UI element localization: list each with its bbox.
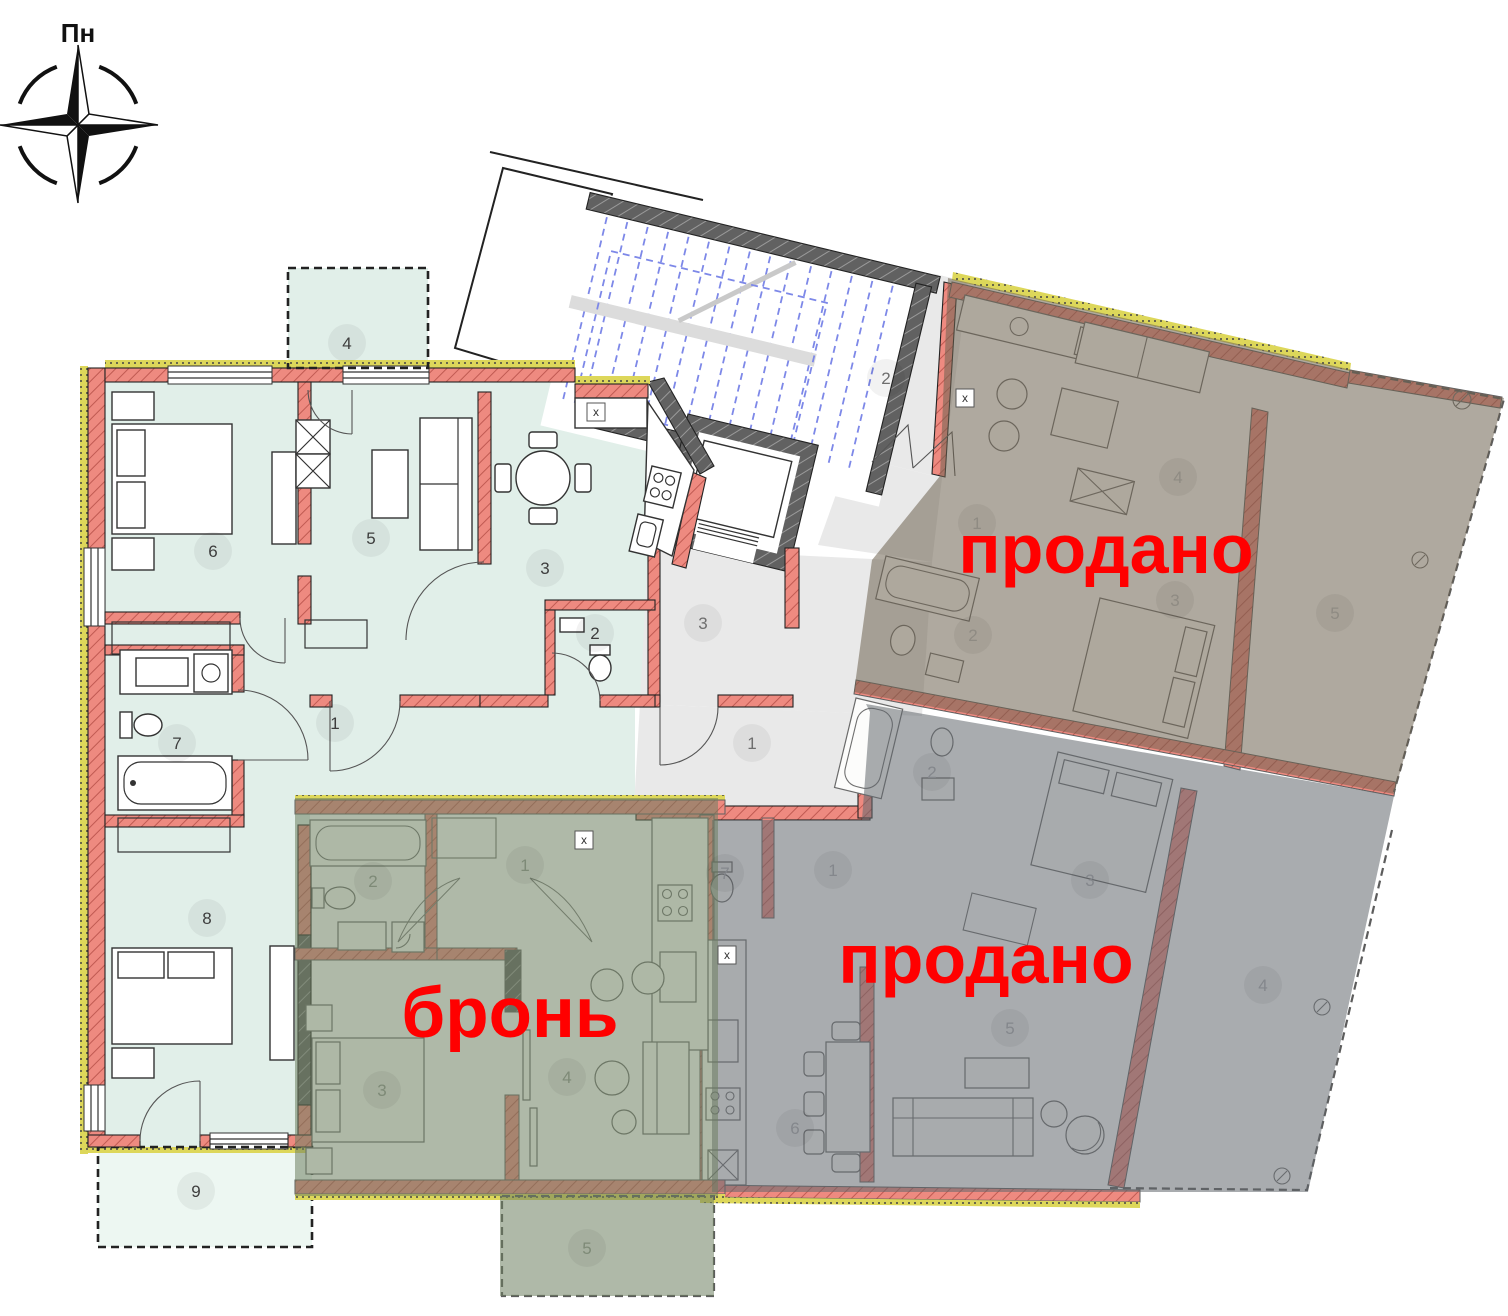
room-label-available-6: 6 [194, 532, 232, 570]
svg-text:1: 1 [520, 856, 529, 875]
svg-text:x: x [724, 948, 730, 962]
sink-marker-icon-3: x [956, 389, 974, 407]
svg-text:7: 7 [720, 864, 729, 883]
svg-text:1: 1 [330, 714, 339, 733]
room-label-sold_bottom-2: 2 [913, 753, 951, 791]
svg-text:3: 3 [1170, 591, 1179, 610]
room-label-available-5: 5 [352, 519, 390, 557]
svg-text:3: 3 [1085, 871, 1094, 890]
svg-text:5: 5 [1005, 1019, 1014, 1038]
svg-text:4: 4 [1173, 468, 1182, 487]
room-label-available-9: 9 [177, 1172, 215, 1210]
svg-text:1: 1 [747, 734, 756, 753]
svg-text:x: x [593, 405, 599, 419]
room-label-sold_top-5: 5 [1316, 594, 1354, 632]
svg-text:4: 4 [562, 1068, 571, 1087]
floor-plan-svg: Пн [0, 0, 1508, 1316]
status-label-sold-bottom: продано [838, 920, 1133, 998]
room-label-available-8: 8 [188, 899, 226, 937]
room-label-common-1: 1 [733, 724, 771, 762]
room-label-available-1: 1 [316, 704, 354, 742]
svg-text:9: 9 [191, 1182, 200, 1201]
svg-text:6: 6 [208, 542, 217, 561]
room-label-common-3: 3 [684, 604, 722, 642]
svg-text:6: 6 [790, 1119, 799, 1138]
svg-text:3: 3 [377, 1081, 386, 1100]
room-label-available-4: 4 [328, 324, 366, 362]
svg-text:7: 7 [172, 734, 181, 753]
svg-text:1: 1 [828, 861, 837, 880]
svg-text:4: 4 [342, 334, 351, 353]
svg-text:2: 2 [368, 872, 377, 891]
room-label-reserved-3: 3 [363, 1071, 401, 1109]
room-label-sold_bottom-5: 5 [991, 1009, 1029, 1047]
room-label-reserved-5: 5 [568, 1229, 606, 1267]
svg-text:2: 2 [590, 624, 599, 643]
sink-marker-icon-2: x [718, 946, 736, 964]
svg-text:2: 2 [968, 626, 977, 645]
room-label-sold_top-2: 2 [954, 616, 992, 654]
wardrobe-icon [296, 420, 330, 488]
svg-text:2: 2 [881, 369, 890, 388]
svg-text:2: 2 [927, 763, 936, 782]
status-label-reserved: бронь [401, 974, 618, 1053]
svg-text:8: 8 [202, 909, 211, 928]
svg-text:x: x [962, 391, 968, 405]
svg-text:5: 5 [1330, 604, 1339, 623]
room-label-sold_bottom-3: 3 [1071, 861, 1109, 899]
coffee-table [372, 450, 408, 518]
status-label-sold-top: продано [958, 510, 1253, 588]
svg-text:5: 5 [582, 1239, 591, 1258]
svg-text:4: 4 [1258, 976, 1267, 995]
svg-text:3: 3 [540, 559, 549, 578]
room-label-reserved-4: 4 [548, 1058, 586, 1096]
room-label-sold_bottom-6: 6 [776, 1109, 814, 1147]
room-label-common-2: 2 [867, 359, 905, 397]
floor-plan: Пн [0, 0, 1508, 1316]
compass-rose-icon: Пн [0, 18, 158, 203]
sink-marker-icon-0: x [587, 403, 605, 421]
sink-marker-icon-1: x [575, 831, 593, 849]
room-label-available-3: 3 [526, 549, 564, 587]
room-label-sold_bottom-7: 7 [706, 854, 744, 892]
svg-text:5: 5 [366, 529, 375, 548]
compass-north-label: Пн [61, 18, 95, 48]
room-label-available-7: 7 [158, 724, 196, 762]
room-label-sold_bottom-4: 4 [1244, 966, 1282, 1004]
svg-text:x: x [581, 833, 587, 847]
room-label-reserved-2: 2 [354, 862, 392, 900]
room-label-sold_top-4: 4 [1159, 458, 1197, 496]
sofa [420, 418, 472, 550]
tv-unit [272, 452, 296, 544]
room-label-available-2: 2 [576, 614, 614, 652]
room-label-reserved-1: 1 [506, 846, 544, 884]
room-label-sold_bottom-1: 1 [814, 851, 852, 889]
svg-text:3: 3 [698, 614, 707, 633]
